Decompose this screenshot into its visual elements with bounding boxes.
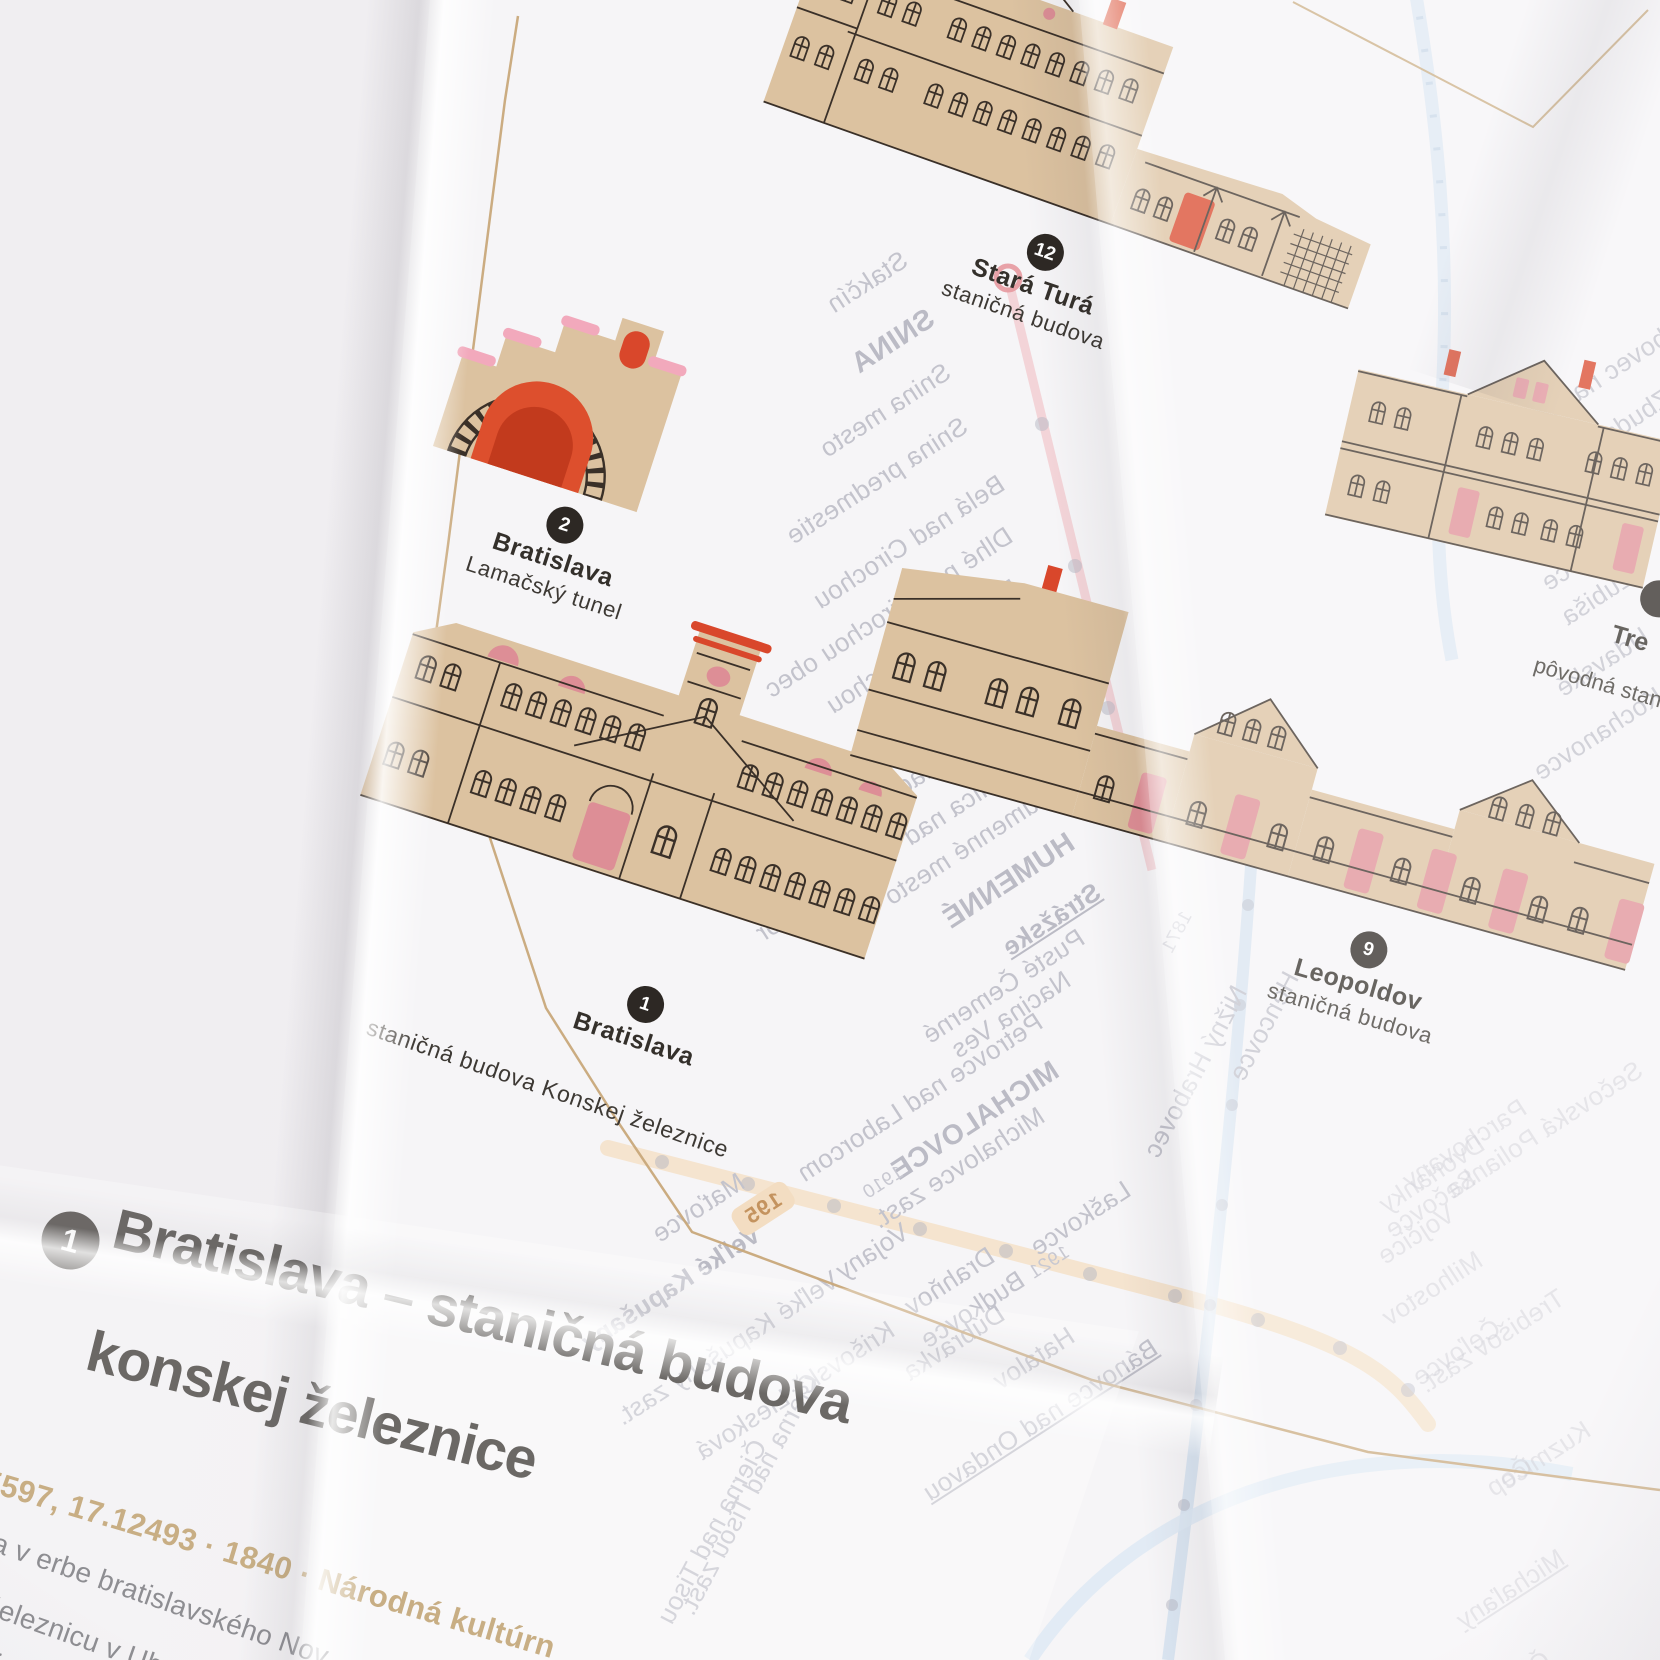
station-label-12: 12 Stará Turá staničná budova [906, 196, 1165, 367]
ghost-year: 1871 [1157, 908, 1197, 957]
ghost-station: Milhostov [1376, 1245, 1489, 1333]
ghost-station: Laškovce [1024, 1175, 1136, 1263]
ghost-station: Drahňov [898, 1241, 1000, 1322]
ghost-station: Krišovská Liesková [689, 1315, 900, 1467]
ghost-station: Dúbravka [897, 1299, 1011, 1388]
ghost-station: Dvorianky [1373, 1129, 1491, 1220]
ghost-station: Snina mesto [814, 357, 957, 465]
ghost-station: Michaľany [1450, 1543, 1570, 1636]
paper-backing-panel [0, 0, 1660, 1660]
ghost-station: Vojčice [1372, 1199, 1461, 1272]
ghost-route-lines [0, 0, 1660, 1660]
station-subtitle: Lamačský tunel [426, 539, 662, 638]
station-number-badge: 9 [1346, 927, 1392, 973]
ghost-station: Dlhé nad Cirochou [820, 573, 1025, 721]
station-number-badge: 12 [1021, 229, 1068, 276]
ghost-station: Čeľovce [1406, 1313, 1506, 1393]
ghost-station: Hankovce [1535, 507, 1652, 598]
heading-meta: 48.15597, 17.12493 · 1840 · Národná kult… [0, 1445, 559, 1660]
ghost-station: Belá nad Cirochou [807, 469, 1010, 616]
station-number-badge: 1 [622, 981, 669, 1028]
ghost-station: Vojany [830, 1217, 915, 1287]
fold-crease-right [997, 0, 1305, 1660]
ghost-station: Kamenica nad Cirochou [792, 683, 1050, 866]
station-number-badge: 2 [541, 502, 588, 549]
ghost-station: Budkovce [914, 1265, 1030, 1355]
station-subtitle: staničná budova [906, 264, 1141, 367]
station-number-badge-edge [1636, 576, 1660, 622]
heading-number-badge: 1 [35, 1205, 106, 1276]
fold-crease-bottom [0, 1150, 1226, 1466]
fold-crease-left [217, 0, 513, 1660]
ghost-station: Kamenica nad Cirochou dvor [749, 733, 1058, 949]
heading-title-line1: Bratislava – staničná budova [107, 1196, 859, 1437]
illustration-lamac-tunnel [423, 262, 702, 523]
ghost-station: Stakčín [821, 245, 914, 320]
ghost-station: Trebišov zast. [1413, 1283, 1571, 1400]
ghost-year: 1910 [859, 1162, 908, 1205]
station-subtitle: staničná budova [1231, 968, 1469, 1059]
ghost-route-number-badge: 195 [728, 1178, 798, 1238]
illustration-topright-station [1316, 308, 1660, 611]
ghost-station: Zbudské Dlhé [1520, 383, 1660, 500]
station-name: Leopoldov [1239, 938, 1478, 1032]
photo-vignette [0, 0, 1660, 1660]
paper-panel-highlight-bottom [0, 0, 1660, 1660]
ghost-station: Veľké Kapušany [575, 1219, 766, 1358]
ghost-station: HUMENNÉ [937, 827, 1081, 936]
ghost-station: Udavské [1550, 621, 1655, 704]
station-subtitle: staničná budova Konskej železnice [363, 1014, 732, 1164]
ghost-station: Hencovce [1222, 966, 1306, 1086]
ghost-station: Veľké Kapušany zast. [609, 1265, 844, 1433]
station-subtitle-edge: pôvodná stan [1531, 652, 1660, 713]
ghost-station: Pusté Čemerné [917, 923, 1091, 1051]
ghost-station: Čerhov [1467, 1645, 1557, 1660]
ghost-station: Hatalov [987, 1321, 1081, 1397]
station-label-9: 9 Leopoldov staničná budova [1231, 899, 1489, 1059]
ghost-station: SNINA [845, 303, 941, 381]
illustration-bratislava-station [325, 529, 976, 1000]
station-label-2: 2 Bratislava Lamačský tunel [426, 470, 685, 637]
ghost-station: Ľubiša [1555, 563, 1639, 632]
map-boundary-lines [0, 0, 1660, 1660]
heading-body-line3: okolia založ [0, 1630, 91, 1660]
ghost-station: Bánovce nad Ondavou [917, 1333, 1164, 1508]
ghost-year: 1921 [1025, 1242, 1074, 1285]
fold-shadow-topright [1345, 0, 1660, 429]
illustration-stara-tura-station [745, 0, 1425, 360]
ghost-station: Čierna nad Tisou zast. [672, 1368, 826, 1621]
ghost-station: Kuzmice [1493, 1415, 1596, 1497]
heading-body-line2: skú železnicu v Uhorsk [0, 1572, 218, 1660]
ghost-station: Dlhé nad Cirochou obec [758, 521, 1018, 705]
fold-shadow-bottomright [1280, 1180, 1660, 1660]
ghost-station: Snina predmestie [780, 411, 973, 552]
ghost-station: Sečovce [1379, 1163, 1482, 1245]
illustration-leopoldov-station [840, 505, 1660, 986]
station-name: Bratislava [525, 992, 743, 1088]
ghost-station: Čierna nad Tisou [650, 1434, 773, 1629]
ghost-station: Nižný Hrabovec [1137, 980, 1254, 1163]
ghost-station: MICHALOVCE [885, 1055, 1064, 1187]
station-name: Stará Turá [915, 234, 1151, 340]
ghost-station: Parchovany [1396, 1093, 1532, 1197]
ghost-station: Koškovce [1534, 449, 1649, 539]
ghost-station: Humenné mesto [878, 779, 1060, 912]
station-name-edge: Tre [1608, 620, 1652, 658]
ghost-station: Sečovská Polianka [1440, 1055, 1648, 1205]
station-label-1: 1 Bratislava [525, 953, 756, 1088]
ghost-station: Čop [1480, 1451, 1538, 1504]
heading-body-line1: dova v erbe bratislavského Nov [0, 1512, 333, 1660]
brochure-photo: Stakčín SNINA Snina mesto Snina predmest… [0, 0, 1660, 1660]
ghost-station: Kochanovce [1527, 681, 1660, 788]
heading-title-line2: konskej železnice [80, 1318, 544, 1494]
paper-panel-highlight-right [0, 0, 1660, 1660]
ghost-station: Strážske [996, 877, 1106, 963]
ghost-station: Nacina Ves [945, 965, 1076, 1065]
station-name: Bratislava [434, 509, 671, 611]
ghost-station: Petrovce nad Laborcom [791, 1007, 1048, 1189]
ghost-station: Maťovce [646, 1167, 750, 1250]
ghost-station: Hrabovec nad Laborcom [1446, 299, 1660, 486]
ghost-station: Modra nad Cirochou [816, 629, 1038, 788]
ghost-station: Michalovce zast. [866, 1101, 1051, 1236]
